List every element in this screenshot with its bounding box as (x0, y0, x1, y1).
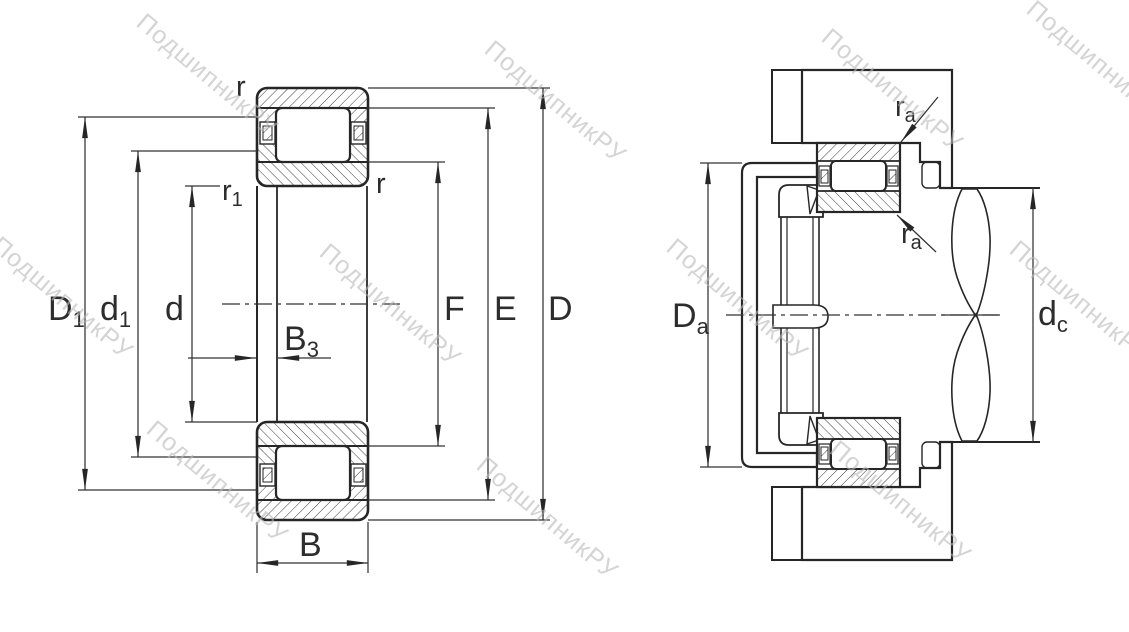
label-ra-bottom: ra (901, 218, 923, 254)
dimension-dc: dc (1033, 188, 1068, 442)
roller (276, 446, 350, 500)
shaft-break-lobe-top (952, 189, 990, 316)
snap-ring-bottom (922, 442, 940, 468)
cage-bar-right-core (354, 468, 363, 482)
label-d: d (165, 290, 184, 328)
label-Da: Da (672, 297, 710, 339)
cage-bar-right-core (354, 126, 363, 140)
cage-bar-left-core (263, 468, 272, 482)
watermark-text: ПодшипникРУ (1021, 0, 1129, 129)
lower-bearing-section (257, 422, 368, 520)
upper-bearing-section (257, 88, 368, 186)
watermark-text: ПодшипникРУ (131, 8, 283, 142)
label-F: F (444, 290, 465, 328)
label-r-inner: r (376, 168, 386, 200)
label-r1: r1 (222, 175, 243, 211)
roller (831, 161, 886, 191)
watermark-text: ПодшипникРУ (479, 35, 631, 169)
snap-ring-top (922, 162, 940, 188)
label-D: D (548, 290, 573, 328)
watermark-text: ПодшипникРУ (471, 451, 623, 585)
dimension-B3: B3 (188, 320, 331, 362)
shaft-break-lobe-bottom (952, 314, 990, 441)
watermark-text: ПодшипникРУ (816, 23, 968, 157)
watermark-text: ПодшипникРУ (1004, 235, 1129, 369)
bearing-dimension-diagram: D1 d1 d F E (0, 0, 1129, 632)
label-E: E (494, 290, 517, 328)
roller (276, 108, 350, 162)
dimension-d: d (165, 186, 257, 422)
left-view-cross-section: D1 d1 d F E (48, 71, 573, 573)
label-B: B (299, 526, 322, 564)
label-B3: B3 (284, 320, 319, 362)
bearing-upper-section (817, 143, 900, 212)
dimension-ra-bottom: ra (897, 215, 936, 254)
